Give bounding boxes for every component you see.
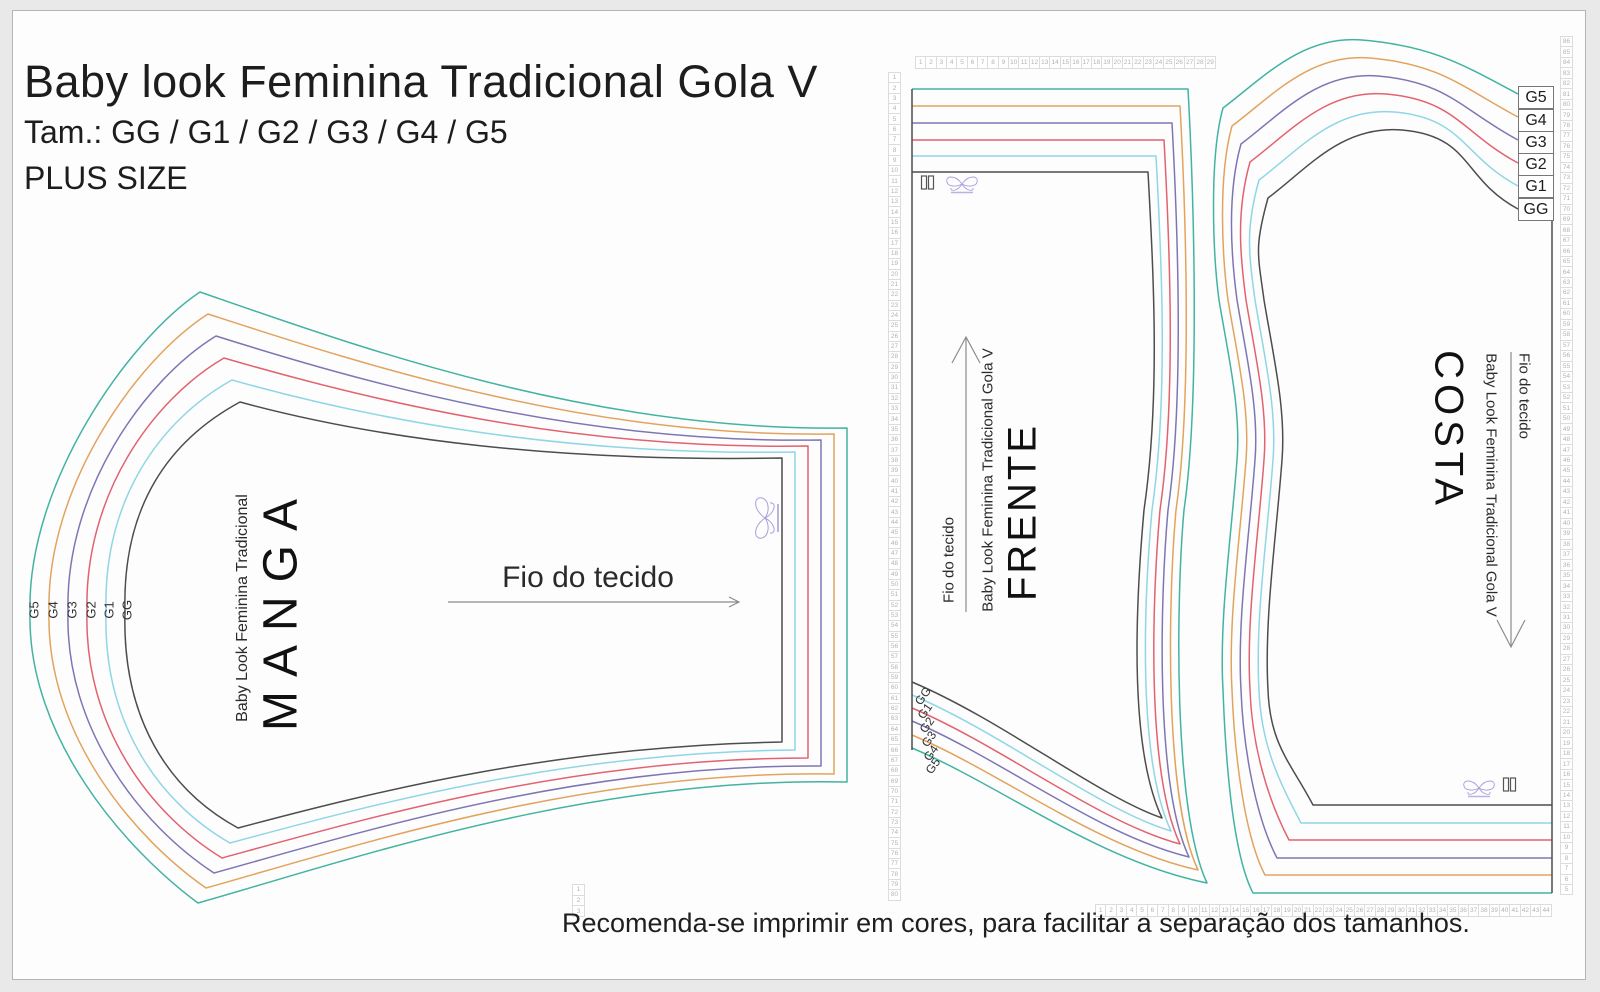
size-range-subtitle: Tam.: GG / G1 / G2 / G3 / G4 / G5 [24, 114, 508, 151]
size-label-manga-g4: G4 [46, 601, 61, 618]
manga-brand-butterfly-logo [750, 490, 785, 546]
frente-piece-label: FRENTE [1001, 423, 1046, 601]
plus-size-label: PLUS SIZE [24, 160, 188, 197]
size-label-manga-g1: G1 [102, 601, 117, 618]
size-label-manga-g3: G3 [65, 601, 80, 618]
ruler-cell: 5 [1560, 884, 1573, 895]
ruler-cell: 44 [1540, 904, 1551, 917]
size-box-costa-g5: G5 [1518, 86, 1554, 109]
size-label-manga-gg: GG [120, 600, 135, 620]
ruler-right-column: 8685848382818079787776757473727170696867… [1560, 36, 1573, 894]
pattern-sheet: Baby look Feminina Tradicional Gola V Ta… [0, 0, 1600, 992]
size-box-costa-g4: G4 [1518, 109, 1554, 132]
page-title: Baby look Feminina Tradicional Gola V [24, 56, 818, 108]
frente-grainline-label: Fio do tecido [941, 517, 958, 603]
size-box-costa-g1: G1 [1518, 175, 1554, 198]
costa-piece-subtitle: Baby Look Feminina Tradicional Gola V [1483, 353, 1500, 616]
manga-piece-subtitle: Baby Look Feminina Tradicional [234, 494, 252, 722]
footer-note: Recomenda-se imprimir em cores, para fac… [562, 908, 1470, 939]
manga-grainline-label: Fio do tecido [502, 561, 674, 595]
manga-piece-label: MANGA [254, 485, 309, 731]
costa-grainline-label: Fio do tecido [1516, 353, 1533, 439]
size-label-manga-g2: G2 [84, 601, 99, 618]
ruler-left-column: 1234567891011121314151617181920212223242… [888, 72, 901, 900]
frente-brand-butterfly-logo [941, 174, 983, 199]
costa-brand-butterfly-logo [1458, 778, 1500, 803]
size-box-costa-gg: GG [1518, 198, 1554, 221]
frente-fold-mark-icon [920, 174, 935, 197]
ruler-cell: 29 [1205, 56, 1216, 69]
costa-fold-mark-icon [1502, 776, 1517, 799]
ruler-top: 1234567891011121314151617181920212223242… [915, 56, 1215, 69]
frente-piece-subtitle: Baby Look Feminina Tradicional Gola V [980, 348, 997, 611]
size-box-costa-g2: G2 [1518, 153, 1554, 176]
costa-piece-label: COSTA [1426, 350, 1471, 510]
size-box-costa-g3: G3 [1518, 131, 1554, 154]
ruler-cell: 80 [888, 889, 901, 900]
size-label-manga-g5: G5 [27, 601, 42, 618]
